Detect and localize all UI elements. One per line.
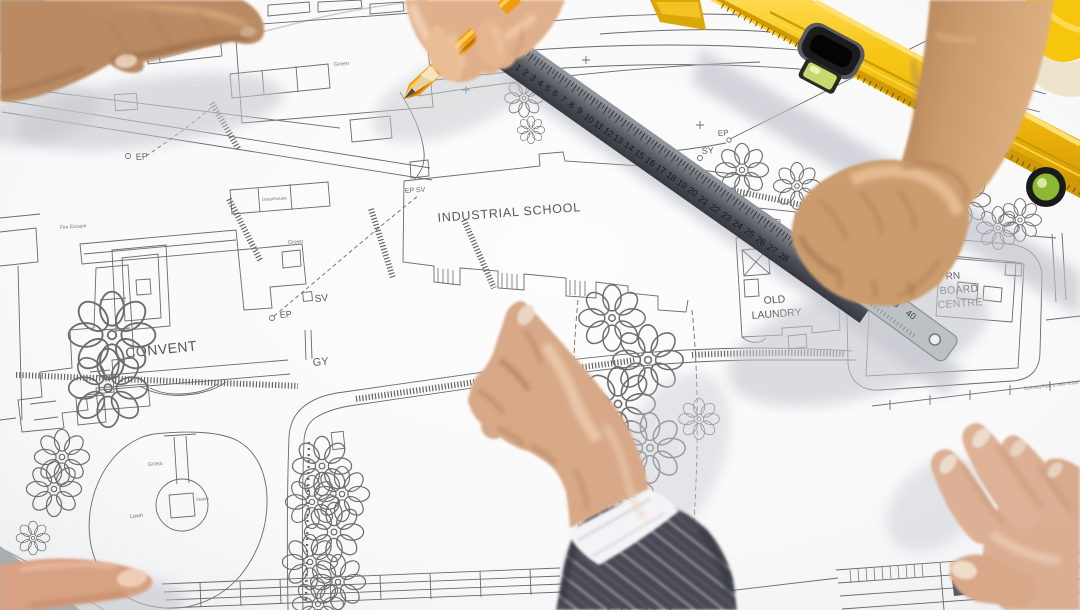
svg-text:EP: EP xyxy=(718,128,729,138)
svg-text:Green: Green xyxy=(334,61,350,68)
svg-text:Lawn: Lawn xyxy=(130,513,144,520)
svg-text:EP: EP xyxy=(279,309,292,320)
svg-text:EP: EP xyxy=(135,151,148,162)
svg-text:SV: SV xyxy=(314,293,329,305)
svg-text:EP SV: EP SV xyxy=(405,187,426,195)
svg-text:GY: GY xyxy=(312,356,330,369)
svg-text:OLD: OLD xyxy=(763,293,786,307)
